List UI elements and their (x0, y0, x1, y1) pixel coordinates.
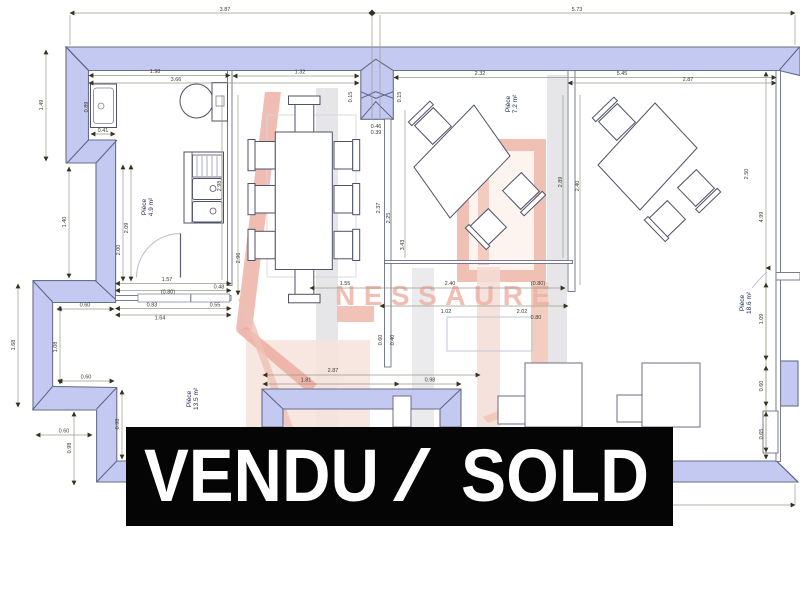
svg-text:1.68: 1.68 (11, 340, 17, 351)
svg-text:2.40: 2.40 (445, 281, 456, 287)
svg-text:1.57: 1.57 (162, 277, 173, 283)
svg-text:VENDU: VENDU (144, 434, 379, 517)
svg-text:0.98: 0.98 (115, 419, 121, 430)
svg-text:1.55: 1.55 (340, 281, 351, 287)
svg-text:0.15: 0.15 (397, 92, 403, 103)
svg-text:1.64: 1.64 (155, 316, 166, 322)
svg-text:0.40: 0.40 (390, 335, 396, 346)
svg-text:(0.80): (0.80) (161, 290, 176, 296)
svg-text:2.87: 2.87 (683, 77, 694, 83)
svg-text:2.96: 2.96 (236, 253, 242, 264)
svg-text:1.98: 1.98 (150, 69, 161, 75)
svg-text:0.98: 0.98 (67, 443, 73, 454)
svg-text:0.41: 0.41 (98, 128, 109, 134)
svg-text:2.89: 2.89 (558, 177, 564, 188)
svg-text:2.02: 2.02 (517, 309, 528, 315)
svg-text:2.40: 2.40 (575, 181, 581, 192)
svg-text:0.15: 0.15 (348, 92, 354, 103)
svg-text:0.60: 0.60 (59, 429, 70, 435)
svg-text:5.73: 5.73 (572, 7, 583, 13)
svg-text:2.09: 2.09 (124, 223, 130, 234)
svg-text:5.45: 5.45 (617, 71, 628, 77)
svg-text:0.80: 0.80 (531, 315, 542, 321)
svg-text:(0.80): (0.80) (531, 281, 546, 287)
svg-text:2.50: 2.50 (744, 169, 750, 180)
svg-text:2.37: 2.37 (376, 203, 382, 214)
svg-text:0.60: 0.60 (80, 303, 91, 309)
svg-text:0.60: 0.60 (378, 335, 384, 346)
svg-text:3.87: 3.87 (220, 7, 231, 13)
svg-text:1.02: 1.02 (441, 309, 452, 315)
svg-text:Pièce7.2 m²: Pièce7.2 m² (505, 94, 519, 113)
svg-text:2.00: 2.00 (116, 245, 122, 256)
svg-text:0.39: 0.39 (371, 130, 382, 136)
svg-text:0.55: 0.55 (210, 303, 221, 309)
svg-text:0.48: 0.48 (214, 285, 225, 291)
svg-text:0.60: 0.60 (81, 375, 92, 381)
svg-text:Pièce4.9 m²: Pièce4.9 m² (141, 197, 155, 216)
svg-text:0.60: 0.60 (759, 381, 765, 392)
svg-text:2.98: 2.98 (217, 181, 223, 192)
svg-text:4.99: 4.99 (759, 212, 765, 223)
svg-text:0.98: 0.98 (425, 378, 436, 384)
svg-text:1.81: 1.81 (301, 378, 312, 384)
svg-text:0.89: 0.89 (84, 102, 90, 113)
svg-text:1.08: 1.08 (53, 342, 59, 353)
svg-text:1.40: 1.40 (62, 217, 68, 228)
svg-text:2.32: 2.32 (475, 71, 486, 77)
svg-text:3.66: 3.66 (171, 77, 182, 83)
svg-text:1.32: 1.32 (295, 70, 306, 76)
svg-text:2.25: 2.25 (386, 213, 392, 224)
svg-text:1.09: 1.09 (759, 314, 765, 325)
svg-text:0.83: 0.83 (147, 303, 158, 309)
svg-text:3.43: 3.43 (400, 240, 406, 251)
svg-text:0.65: 0.65 (759, 429, 765, 440)
svg-text:SOLD: SOLD (461, 434, 649, 517)
svg-text:2.87: 2.87 (328, 368, 339, 374)
svg-text:1.49: 1.49 (39, 100, 45, 111)
